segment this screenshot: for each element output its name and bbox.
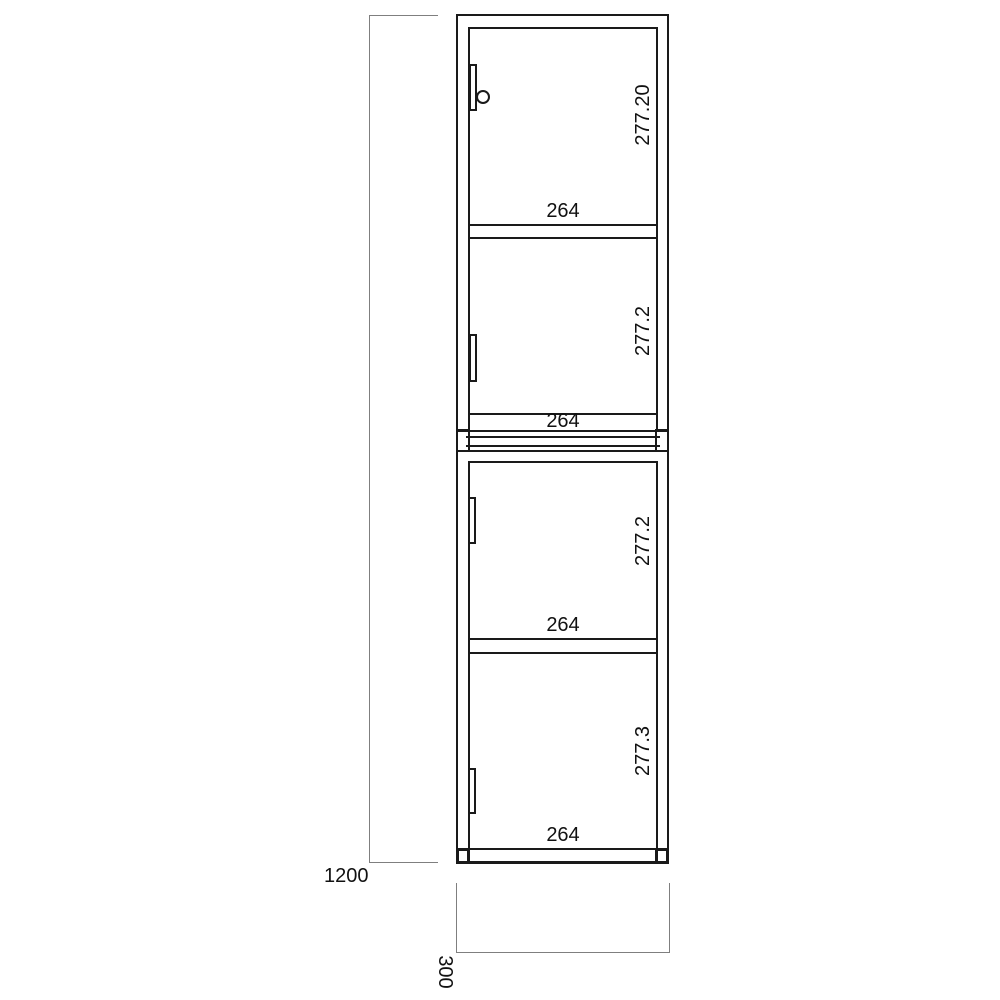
depth-dim-left-line [456,883,457,953]
section-4-height-label: 277.3 [633,716,653,786]
section-1-height-label: 277.20 [633,80,653,150]
depth-dim-bottom-line [456,952,670,953]
height-dim-bottom-cap [369,862,438,863]
drawing-canvas: 1200 300 264 264 264 264 277.20 277.2 27… [0,0,1000,1000]
junction-rail-top-line [466,436,660,438]
lower-cabinet-inner-right-wall [656,461,658,849]
section-1-width-label: 264 [541,201,585,221]
height-dim-top-cap [369,15,438,16]
junction-rail-bottom-line [466,445,660,447]
lower-shelf-top-line [468,638,658,640]
section-4-width-label: 264 [541,825,585,845]
upper-cabinet-inner-top-line [468,27,658,29]
upper-cabinet-inner-right-wall [656,27,658,432]
overall-height-label: 1200 [324,866,368,886]
door-knob-section-1 [476,90,490,104]
upper-shelf-top-line [468,224,658,226]
door-handle-section-3 [468,497,476,544]
section-3-height-label: 277.2 [633,506,653,576]
lower-shelf-bottom-line [468,652,658,654]
height-dim-vertical-line [369,15,370,863]
lower-cabinet-left-foot [456,848,470,864]
section-3-width-label: 264 [541,615,585,635]
upper-shelf-bottom-line [468,237,658,239]
junction-left-block [456,429,470,452]
door-handle-section-2 [469,334,477,382]
door-handle-section-4 [468,768,476,814]
depth-label: 300 [435,950,455,994]
section-2-height-label: 277.2 [633,296,653,366]
upper-cabinet-outline [456,14,669,432]
depth-dim-right-line [669,883,670,953]
lower-cabinet-right-foot [655,848,669,864]
lower-cabinet-inner-top-line [468,461,658,463]
lower-cabinet-inner-bottom-line [468,848,658,850]
door-handle-section-1 [469,64,477,111]
junction-right-block [655,429,669,452]
section-2-width-label: 264 [541,411,585,431]
